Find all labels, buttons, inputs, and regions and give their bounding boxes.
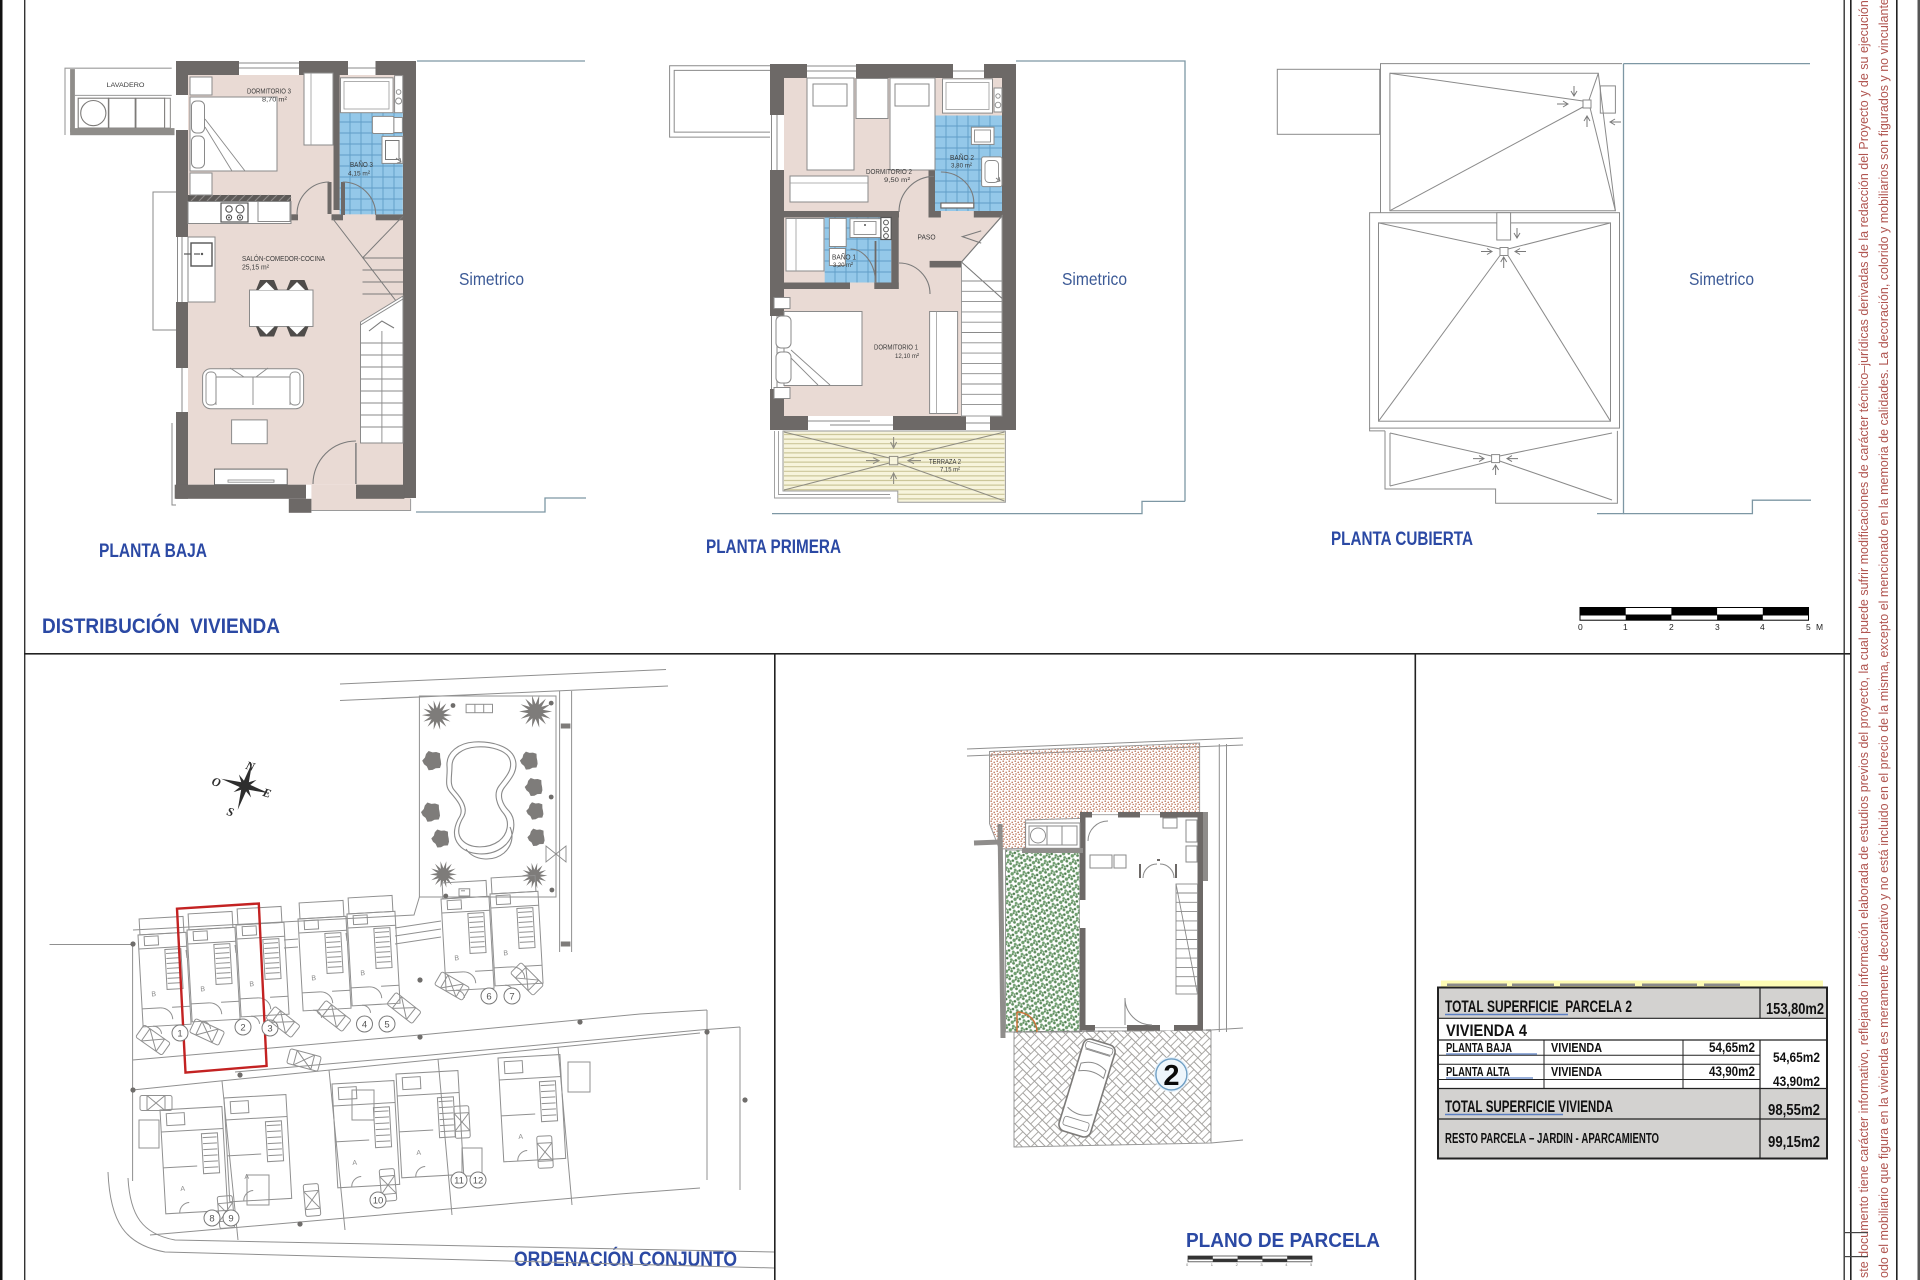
svg-text:54,65m2: 54,65m2 (1773, 1049, 1820, 1065)
svg-text:DORMITORIO 1: DORMITORIO 1 (874, 345, 918, 352)
svg-text:1: 1 (1623, 622, 1628, 632)
svg-text:1: 1 (177, 1029, 182, 1040)
svg-text:DORMITORIO 2: DORMITORIO 2 (866, 169, 912, 176)
svg-text:2: 2 (1669, 622, 1674, 632)
svg-text:153,80m2: 153,80m2 (1766, 1001, 1824, 1018)
svg-text:3: 3 (267, 1024, 272, 1035)
svg-text:3: 3 (1715, 622, 1720, 632)
svg-text:4: 4 (362, 1020, 367, 1031)
svg-text:SALÓN-COMEDOR-COCINA: SALÓN-COMEDOR-COCINA (242, 254, 325, 263)
svg-text:DORMITORIO 3: DORMITORIO 3 (247, 89, 291, 96)
svg-text:12,10 m²: 12,10 m² (895, 353, 920, 360)
svg-text:PLANO DE PARCELA: PLANO DE PARCELA (1186, 1229, 1380, 1252)
svg-text:B: B (249, 981, 254, 988)
svg-text:odo el mobiliario que figura e: odo el mobiliario que figura en la vivie… (1877, 0, 1891, 1278)
svg-text:4,15 m²: 4,15 m² (348, 171, 371, 178)
svg-text:11: 11 (454, 1176, 464, 1187)
svg-text:RESTO PARCELA – JARDIN - APARC: RESTO PARCELA – JARDIN - APARCAMIENTO (1445, 1131, 1659, 1147)
svg-text:PASO: PASO (918, 235, 937, 242)
svg-text:BAÑO 1: BAÑO 1 (832, 253, 856, 262)
svg-text:8,70 m²: 8,70 m² (262, 97, 288, 104)
svg-text:54,65m2: 54,65m2 (1709, 1040, 1755, 1055)
svg-text:9,50 m²: 9,50 m² (884, 177, 911, 184)
svg-text:A: A (180, 1186, 185, 1193)
svg-text:3,20 m²: 3,20 m² (833, 262, 854, 269)
svg-text:BAÑO 2: BAÑO 2 (950, 153, 974, 162)
svg-text:2: 2 (1163, 1060, 1179, 1092)
svg-text:PLANTA PRIMERA: PLANTA PRIMERA (706, 536, 841, 558)
svg-text:B: B (151, 991, 156, 998)
svg-text:TERRAZA 2: TERRAZA 2 (929, 459, 961, 466)
svg-text:43,90m2: 43,90m2 (1709, 1064, 1755, 1079)
svg-text:A: A (352, 1160, 357, 1167)
svg-text:BAÑO 3: BAÑO 3 (350, 160, 373, 169)
svg-text:A: A (416, 1150, 421, 1157)
svg-text:PLANTA BAJA: PLANTA BAJA (1446, 1040, 1512, 1055)
svg-text:PLANTA CUBIERTA: PLANTA CUBIERTA (1331, 528, 1473, 550)
svg-text:VIVIENDA: VIVIENDA (1551, 1064, 1603, 1079)
svg-text:12: 12 (473, 1176, 484, 1187)
svg-text:25,15 m²: 25,15 m² (242, 265, 270, 272)
svg-text:Simetrico: Simetrico (1062, 269, 1127, 289)
svg-text:B: B (503, 950, 508, 957)
svg-text:B: B (200, 986, 205, 993)
svg-text:Simetrico: Simetrico (459, 269, 524, 289)
svg-text:VIVIENDA 4: VIVIENDA 4 (1446, 1022, 1528, 1040)
svg-text:7: 7 (509, 992, 514, 1003)
svg-text:TOTAL SUPERFICIE VIVIENDA: TOTAL SUPERFICIE VIVIENDA (1445, 1097, 1613, 1116)
svg-text:PLANTA ALTA: PLANTA ALTA (1446, 1064, 1510, 1079)
svg-text:10: 10 (373, 1196, 384, 1207)
svg-text:LAVADERO: LAVADERO (107, 82, 145, 89)
svg-text:PLANTA BAJA: PLANTA BAJA (99, 540, 207, 562)
svg-text:98,55m2: 98,55m2 (1768, 1102, 1820, 1119)
svg-text:3,80 m²: 3,80 m² (951, 163, 973, 170)
svg-text:6: 6 (486, 992, 491, 1003)
svg-text:TOTAL SUPERFICIE PARCELA 2: TOTAL SUPERFICIE PARCELA 2 (1445, 997, 1632, 1016)
svg-text:5: 5 (384, 1020, 389, 1031)
svg-text:5: 5 (1806, 622, 1811, 632)
svg-text:9: 9 (228, 1214, 233, 1225)
svg-text:B: B (311, 975, 316, 982)
svg-text:ste documento tiene carácter i: ste documento tiene carácter informativo… (1857, 0, 1871, 1278)
svg-text:0: 0 (1578, 622, 1583, 632)
svg-text:2: 2 (240, 1023, 245, 1034)
svg-text:8: 8 (209, 1214, 214, 1225)
svg-text:B: B (454, 955, 459, 962)
svg-text:43,90m2: 43,90m2 (1773, 1073, 1820, 1089)
svg-text:Simetrico: Simetrico (1689, 269, 1754, 289)
svg-text:A: A (518, 1134, 523, 1141)
svg-text:99,15m2: 99,15m2 (1768, 1134, 1820, 1151)
svg-text:DISTRIBUCIÓN VIVIENDA: DISTRIBUCIÓN VIVIENDA (42, 613, 280, 638)
svg-text:7,15 m²: 7,15 m² (940, 467, 961, 474)
svg-text:M: M (1816, 622, 1823, 632)
svg-text:4: 4 (1760, 622, 1765, 632)
svg-text:VIVIENDA: VIVIENDA (1551, 1040, 1603, 1055)
svg-text:B: B (360, 970, 365, 977)
